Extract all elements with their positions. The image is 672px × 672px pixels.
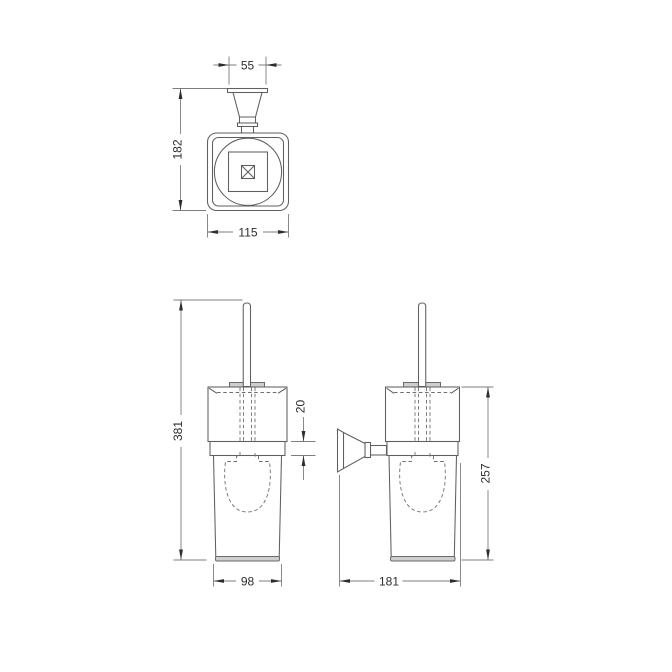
collar-side	[387, 442, 458, 456]
brush-handle-side	[419, 303, 426, 387]
dim-label-182: 182	[171, 139, 185, 159]
front-view: 381	[171, 300, 316, 589]
cup-base-side	[391, 557, 456, 562]
dim-label-181: 181	[379, 575, 399, 589]
holder-body-top	[208, 133, 289, 211]
wall-bracket-top	[228, 89, 268, 134]
brush-head-hidden-front	[225, 452, 271, 512]
dimension-collar-height: 20	[291, 400, 316, 480]
bracket-ring	[365, 443, 371, 458]
bracket-stem	[371, 446, 387, 456]
dimension-holder-height: 257	[462, 387, 495, 560]
brush-head-hidden-side	[400, 452, 446, 512]
dimension-cup-width: 98	[214, 564, 282, 589]
collar-front	[210, 442, 285, 456]
bracket-cone	[344, 433, 366, 469]
wall-plate	[338, 429, 344, 472]
dim-label-257: 257	[479, 463, 493, 483]
dimension-bracket-width: 55	[214, 57, 282, 85]
glass-cup-side	[389, 452, 457, 561]
dim-label-20: 20	[294, 400, 308, 414]
wall-bracket-side	[338, 429, 387, 472]
side-view: 257 181	[338, 303, 495, 589]
technical-drawing: 55	[0, 0, 672, 672]
top-view: 55	[171, 57, 289, 240]
dimension-body-width: 115	[208, 214, 289, 240]
dim-label-381: 381	[171, 421, 185, 441]
dim-label-98: 98	[241, 575, 255, 589]
dim-label-55: 55	[241, 59, 255, 73]
dim-label-115: 115	[238, 226, 257, 240]
glass-cup-front	[214, 452, 282, 561]
technical-drawing-page: 55	[0, 0, 672, 672]
brush-handle-front	[243, 303, 250, 387]
cup-base-front	[216, 557, 280, 562]
